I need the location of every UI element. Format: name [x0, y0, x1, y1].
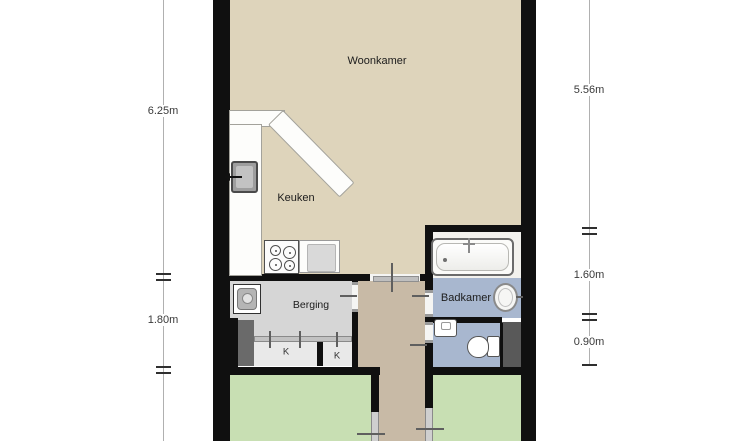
hand-basin-icon — [434, 319, 457, 337]
dimension-left-1-80: 1.80m — [145, 314, 182, 326]
label-badkamer: Badkamer — [441, 292, 491, 304]
washbasin-faucet-icon — [516, 296, 523, 298]
bathtub-faucet-icon — [468, 238, 470, 253]
door-berging — [352, 282, 358, 312]
label-keuken: Keuken — [277, 192, 314, 204]
dimension-right-1-60: 1.60m — [571, 269, 608, 281]
oven-icon — [231, 161, 258, 193]
dimension-right-5-56: 5.56m — [571, 84, 608, 96]
bedroom-left-floor — [230, 375, 371, 441]
wall-badkamer-top — [425, 225, 521, 232]
dimension-right-0-90: 0.90m — [571, 336, 608, 348]
wall-exterior-left — [213, 0, 230, 441]
door-wc — [425, 322, 433, 343]
washbasin-icon — [493, 283, 518, 312]
dimension-left-6-25: 6.25m — [145, 105, 182, 117]
wall-exterior-right — [521, 0, 536, 441]
washing-machine-icon — [233, 284, 261, 314]
label-woonkamer: Woonkamer — [347, 55, 406, 67]
wall-closet-divider — [317, 338, 323, 366]
wall-bottom-left — [230, 367, 380, 375]
hallway-floor-upper — [352, 274, 433, 367]
label-closet-1: K — [283, 347, 289, 358]
label-berging: Berging — [293, 299, 329, 311]
sink-icon — [299, 240, 340, 273]
bedroom-right-floor — [433, 375, 521, 441]
stove-icon — [264, 240, 299, 274]
door-woonkamer-hall — [370, 274, 420, 281]
door-bedroom-left — [371, 412, 379, 441]
bathtub-icon — [431, 238, 514, 276]
hallway-floor-lower — [379, 367, 425, 441]
label-closet-2: K — [334, 351, 340, 362]
dimension-line-right — [589, 0, 590, 366]
wall-shaft-left-edge — [230, 318, 238, 367]
door-bedroom-right — [425, 408, 433, 441]
dimension-line-left — [163, 0, 164, 441]
toilet-icon — [467, 334, 502, 359]
wall-bedroom-left-door — [371, 367, 379, 412]
shaft-right — [502, 322, 521, 367]
kitchen-counter-side — [229, 124, 262, 276]
shaft-left — [238, 320, 254, 366]
wall-bottom-right — [425, 367, 521, 375]
floorplan-canvas: Woonkamer Keuken Berging Badkamer K K 6.… — [0, 0, 750, 441]
